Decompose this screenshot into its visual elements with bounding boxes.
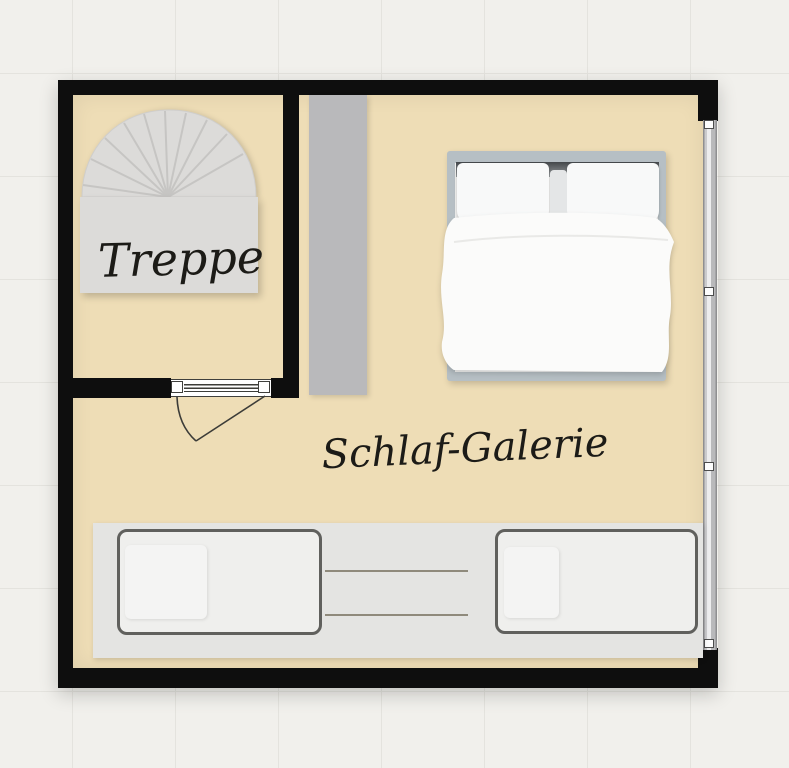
wall-top: [58, 80, 718, 95]
wall-left: [58, 80, 73, 688]
shelf-line-top: [325, 570, 468, 572]
wall-bottom: [58, 668, 718, 688]
shelf-line-bottom: [325, 614, 468, 616]
window-frame-marker: [704, 462, 714, 471]
staircase-label: Treppe: [97, 230, 238, 288]
wall-corner-top-right: [698, 95, 718, 121]
staircase-winder-icon: [80, 108, 258, 198]
single-bed-right-pillow: [504, 547, 559, 618]
window-frame-marker: [704, 287, 714, 296]
window-right: [703, 120, 717, 650]
wall-stair-room-right: [283, 95, 299, 398]
window-frame-marker: [704, 639, 714, 648]
door-swing-arc: [150, 390, 300, 460]
column-slab: [309, 95, 367, 395]
floor-plan-page: Treppe Schlaf-Galerie: [0, 0, 789, 768]
duvet: [430, 208, 680, 380]
window-frame-marker: [704, 120, 714, 129]
single-bed-left-pillow: [125, 545, 207, 619]
